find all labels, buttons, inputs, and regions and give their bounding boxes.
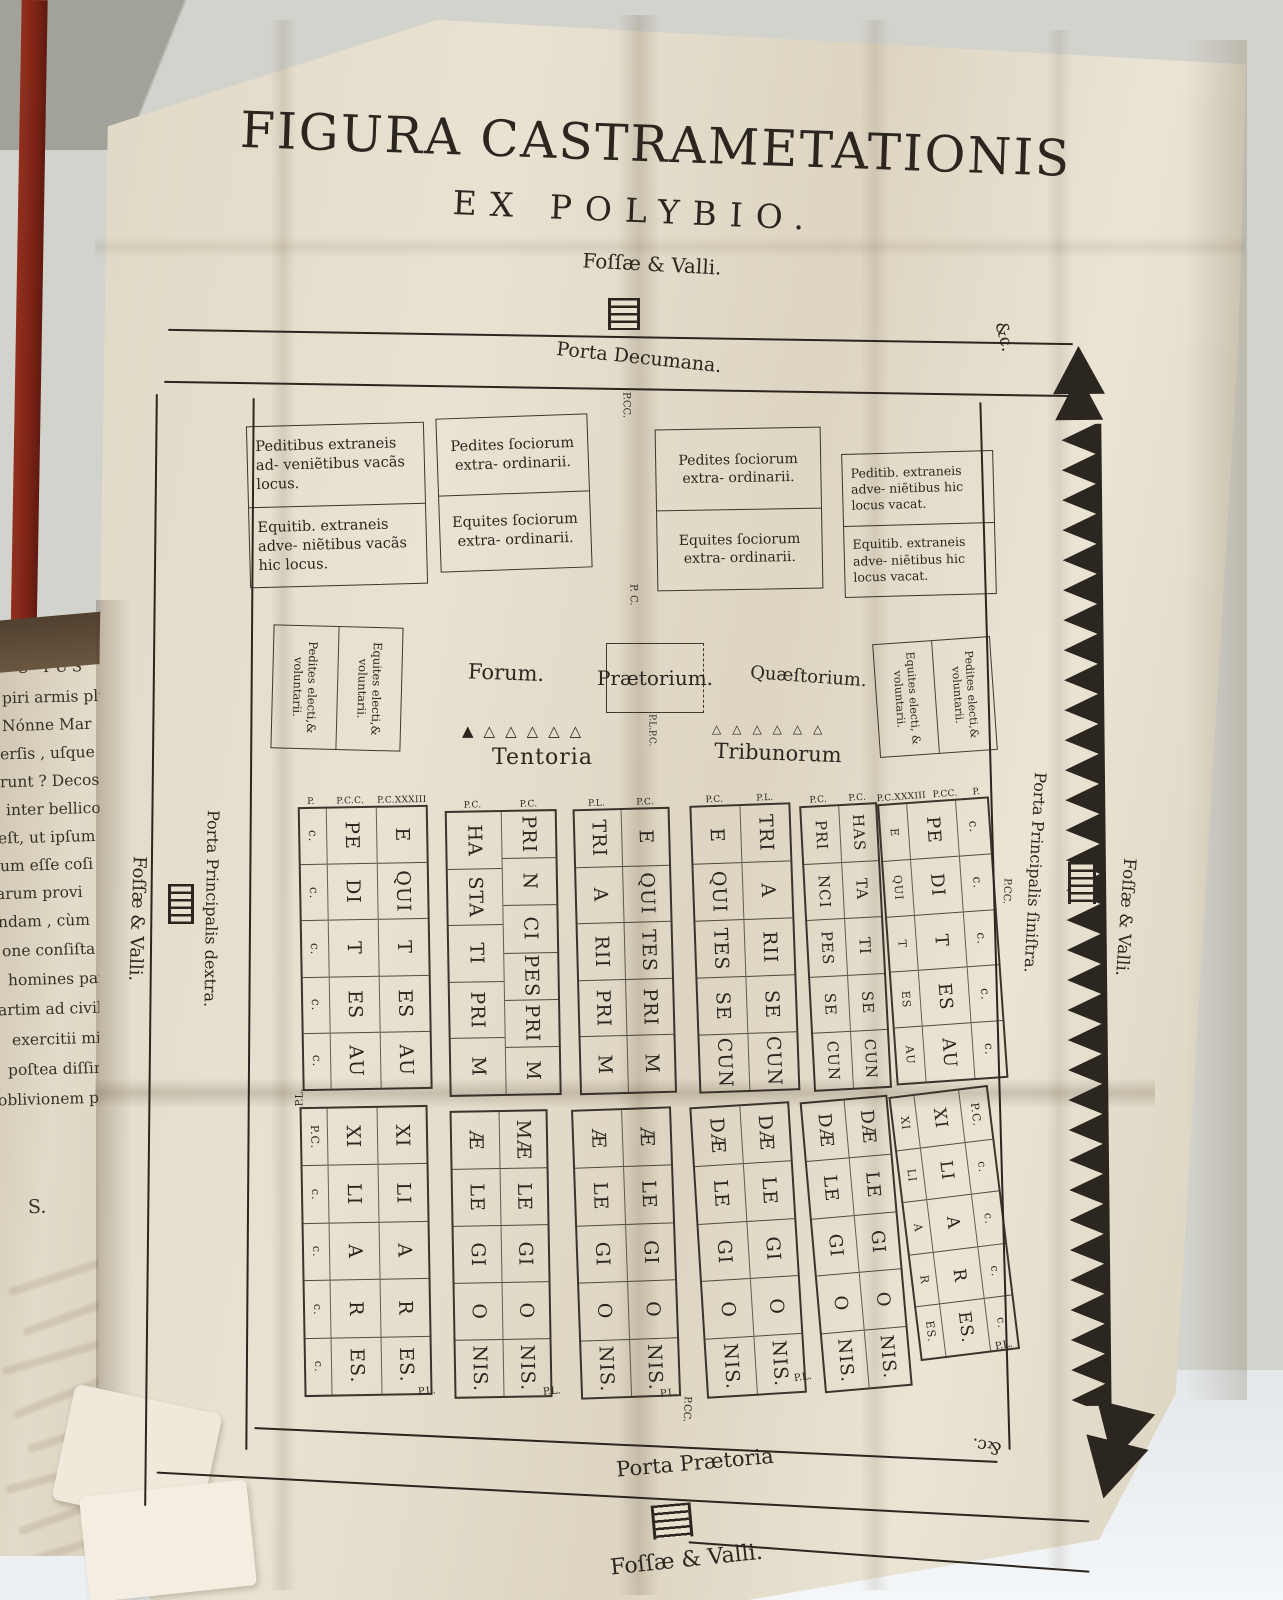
grid-cell: O bbox=[817, 1272, 863, 1333]
grid-cell-text: ES bbox=[395, 989, 415, 1018]
grid-cell-text: A bbox=[912, 1222, 924, 1232]
grid-cell-text: PE bbox=[923, 816, 943, 844]
grid-cell-text: O bbox=[717, 1300, 737, 1318]
grid-cell: E bbox=[377, 807, 427, 863]
electi-cell: Equites electi,& voluntarii. bbox=[335, 627, 403, 751]
praetorium-box: Prætorium. bbox=[606, 643, 704, 713]
grid-cell: O bbox=[750, 1275, 801, 1336]
grid-block-headers: P.P.C.C.P.C.XXXIII bbox=[297, 787, 427, 807]
grid-cell-text: LE bbox=[710, 1179, 731, 1209]
grid-cell: DI bbox=[910, 855, 963, 914]
grid-cell: PRI bbox=[501, 811, 555, 858]
grid-cell: QUI bbox=[883, 859, 913, 917]
grid-cell-text: CUN bbox=[714, 1037, 735, 1088]
grid-cell: O bbox=[702, 1278, 753, 1339]
grid-cell-text: A bbox=[345, 1244, 364, 1259]
grid-cell-text: LE bbox=[758, 1176, 779, 1206]
electi-cell-text: Pedites electi,& voluntarii. bbox=[289, 628, 321, 747]
grid-cell: CUN bbox=[813, 1031, 852, 1089]
p-cc-right-mark: P.CC. bbox=[999, 878, 1012, 926]
grid-block-body: HASTATIPRIMPRINCIPESPRIM bbox=[445, 809, 562, 1097]
grid-cell: E bbox=[879, 804, 909, 861]
grid-cell: M bbox=[451, 1037, 505, 1095]
grid-cell: TI bbox=[449, 924, 503, 982]
grid-cell: T bbox=[887, 915, 917, 973]
grid-cell-text: R bbox=[918, 1274, 930, 1285]
grid-cell: A bbox=[742, 860, 792, 919]
quarter-box-text: Equites ſociorum extra- ordinarii. bbox=[657, 507, 822, 590]
grid-cell-text: ES bbox=[935, 982, 955, 1011]
grid-cell: GI bbox=[854, 1211, 900, 1272]
grid-cell: c. bbox=[972, 1020, 1006, 1078]
grid-cell-text: AU bbox=[904, 1045, 916, 1065]
grid-cell: E bbox=[691, 806, 741, 864]
grid-cell-text: Æ bbox=[588, 1129, 608, 1150]
grid-cell-text: STA bbox=[465, 876, 485, 918]
electi-cell: Equites electi, & voluntarii. bbox=[873, 641, 938, 757]
grid-cell-text: QUI bbox=[393, 870, 413, 912]
grid-cell-text: PE bbox=[342, 821, 361, 850]
etc-mark-bottom: &c. bbox=[971, 1434, 1004, 1457]
grid-cell: XI bbox=[328, 1108, 377, 1165]
porta-decumana-label: Porta Decumana. bbox=[555, 340, 711, 376]
grid-cell: T bbox=[914, 911, 967, 970]
grid-cell-text: E bbox=[707, 827, 727, 843]
grid-cell: LI bbox=[921, 1142, 971, 1200]
fossae-valli-top-label: Foſſæ & Valli. bbox=[572, 250, 733, 279]
street-mark-label: P.L. bbox=[994, 1339, 1013, 1353]
grid-cell: c. bbox=[305, 1280, 331, 1338]
grid-cell-text: c. bbox=[313, 1361, 324, 1373]
grid-column: XILIARES. bbox=[327, 1108, 381, 1395]
grid-header-label: P.L. bbox=[572, 798, 621, 809]
p-l-p-c-mark: P.L.P.C. bbox=[646, 714, 655, 766]
grid-cell: LE bbox=[453, 1168, 500, 1226]
grid-cell-text: c. bbox=[983, 1043, 996, 1056]
grid-cell: c. bbox=[302, 920, 329, 977]
grid-cell: DÆ bbox=[844, 1097, 890, 1157]
grid-cell-text: N bbox=[520, 873, 539, 891]
grid-cell: PRI bbox=[626, 978, 673, 1036]
grid-cell-text: M bbox=[468, 1056, 487, 1077]
grid-cell: PRI bbox=[579, 979, 626, 1037]
street-mark-label: P.L. bbox=[418, 1385, 437, 1398]
grid-cell-text: E bbox=[889, 828, 901, 838]
grid-block-body: ÆLEGIONIS.ÆLEGIONIS. bbox=[571, 1106, 681, 1399]
grid-cell-text: ES bbox=[900, 990, 912, 1008]
grid-cell-text: SE bbox=[822, 992, 838, 1016]
grid-cell: TA bbox=[842, 860, 881, 918]
grid-cell: MÆ bbox=[499, 1111, 546, 1168]
grid-cell: GI bbox=[698, 1221, 749, 1282]
grid-header-label: P.C. bbox=[689, 794, 740, 806]
street-mark-label: P.L. bbox=[543, 1385, 562, 1398]
grid-cell-text: O bbox=[643, 1301, 663, 1318]
grid-cell: DI bbox=[327, 863, 377, 920]
grid-cell: R bbox=[934, 1246, 984, 1304]
grid-cell-text: c. bbox=[310, 1189, 321, 1201]
grid-cell-text: Æ bbox=[636, 1127, 656, 1148]
grid-cell: PRI bbox=[801, 806, 840, 863]
grid-cell: TI bbox=[845, 916, 884, 974]
grid-cell-text: c. bbox=[311, 1055, 323, 1068]
grid-block-body: DÆLEGIONIS.DÆLEGIONIS. bbox=[689, 1101, 807, 1399]
grid-cell: AU bbox=[330, 1032, 380, 1089]
grid-cell-text: LI bbox=[344, 1183, 363, 1205]
grid-cell: c. bbox=[304, 1032, 331, 1089]
grid-cell-text: AU bbox=[938, 1037, 958, 1068]
grid-cell-text: NIS. bbox=[720, 1343, 742, 1391]
grid-block-body: ÆLEGIONIS.MÆLEGIONIS. bbox=[450, 1109, 553, 1399]
grid-block-headers: P.L.P.C. bbox=[572, 789, 669, 810]
grid-cell-text: PRI bbox=[522, 1004, 542, 1042]
forum-label: Forum. bbox=[468, 660, 561, 685]
grid-cell: PES bbox=[807, 918, 846, 976]
grid-cell-text: NCI bbox=[816, 874, 833, 908]
grid-column: ÆLEGIONIS. bbox=[621, 1108, 679, 1396]
grid-cell: Æ bbox=[452, 1112, 499, 1169]
grid-cell: GI bbox=[626, 1222, 675, 1281]
grid-header-label: P.C. bbox=[501, 799, 557, 810]
grid-cell: LE bbox=[695, 1163, 746, 1224]
grid-cell: CUN bbox=[748, 1031, 798, 1090]
grid-cell-text: CUN bbox=[824, 1040, 841, 1081]
grid-column: TRIARIISECUN bbox=[739, 804, 798, 1090]
grid-cell: T bbox=[378, 918, 428, 975]
grid-cell-text: A bbox=[943, 1216, 961, 1231]
electi-cell-text: Equites electi,& voluntarii. bbox=[353, 629, 385, 748]
grid-cell: SE bbox=[810, 975, 849, 1033]
camp-grid-block: P.C.P.L.EQUITESSECUNTRIARIISECUN bbox=[689, 784, 800, 1089]
grid-column: EQUITESPRIM bbox=[621, 809, 675, 1092]
grid-cell-text: CI bbox=[520, 917, 539, 941]
grid-cell-text: GI bbox=[825, 1233, 845, 1258]
grid-cell-text: AU bbox=[346, 1045, 366, 1077]
grid-cell-text: O bbox=[766, 1297, 786, 1315]
grid-cell-text: TI bbox=[856, 937, 872, 956]
grid-cell: GI bbox=[812, 1215, 858, 1276]
quarter-box-text: Pedites ſociorum extra- ordinarii. bbox=[656, 428, 821, 510]
grid-cell-text: ES. bbox=[924, 1320, 938, 1343]
grid-cell: PES bbox=[504, 952, 558, 1000]
grid-cell-text: SE bbox=[859, 991, 875, 1015]
grid-cell-text: T bbox=[394, 940, 413, 954]
grid-cell: PRI bbox=[450, 981, 504, 1039]
grid-cell-text: Æ bbox=[466, 1130, 485, 1150]
grid-block-body: c.c.c.c.c.PEDITESAUEQUITESAU bbox=[298, 805, 433, 1091]
grid-cell: LE bbox=[807, 1157, 853, 1218]
street-mark-label: P.L. bbox=[793, 1371, 812, 1384]
grid-cell-text: SE bbox=[761, 989, 781, 1019]
grid-cell-text: R bbox=[395, 1300, 414, 1316]
camp-quarter-box: Pedites ſociorum extra- ordinarii. Equit… bbox=[435, 413, 592, 572]
grid-cell-text: NIS. bbox=[834, 1338, 856, 1384]
grid-cell-text: A bbox=[758, 882, 778, 897]
grid-cell: ES bbox=[379, 975, 429, 1032]
camp-grid-block: DÆLEGIONIS.DÆLEGIONIS. bbox=[689, 1101, 806, 1395]
tentoria-triangle-icons: ▲△△△△△ bbox=[462, 722, 591, 740]
grid-cell-text: O bbox=[469, 1303, 488, 1320]
grid-cell: STA bbox=[448, 868, 502, 926]
electi-cell-text: Equites electi, & voluntarii. bbox=[888, 644, 923, 754]
grid-cell-text: c. bbox=[310, 999, 322, 1012]
gate-hatch-icon bbox=[651, 1502, 694, 1539]
grid-block-body: P.C.c.c.c.c.XILIARES.XILIARES. bbox=[300, 1105, 433, 1397]
grid-cell-text: NIS. bbox=[768, 1340, 790, 1388]
electi-cell-text: Pedites electi,& voluntarii. bbox=[947, 640, 982, 750]
grid-cell-text: T bbox=[344, 941, 363, 955]
grid-cell-text: SE bbox=[712, 991, 732, 1021]
grid-cell: M bbox=[581, 1035, 628, 1093]
grid-cell: GI bbox=[454, 1225, 501, 1283]
grid-cell: A bbox=[330, 1222, 379, 1280]
grid-cell: RII bbox=[744, 917, 794, 976]
grid-cell: P.C. bbox=[302, 1109, 328, 1166]
rampart-arrowhead-bottom bbox=[1067, 1388, 1166, 1507]
grid-column: ÆLEGIONIS. bbox=[452, 1112, 503, 1397]
grid-cell-text: PRI bbox=[593, 989, 613, 1027]
grid-cell-text: A bbox=[590, 887, 609, 902]
grid-cell: QUI bbox=[623, 864, 670, 922]
camp-grid-block: P.L.P.C.TRIARIIPRIMEQUITESPRIM bbox=[572, 789, 677, 1091]
grid-cell-text: c. bbox=[967, 820, 980, 833]
grid-cell-text: c. bbox=[309, 943, 321, 956]
grid-cell: DÆ bbox=[802, 1101, 848, 1161]
grid-cell-text: LE bbox=[638, 1180, 658, 1209]
grid-header-label: P.C. bbox=[621, 797, 670, 808]
quarter-box-text: Pedites ſociorum extra- ordinarii. bbox=[436, 414, 589, 495]
grid-cell-text: GI bbox=[867, 1230, 887, 1255]
grid-cell-text: c. bbox=[976, 1160, 988, 1173]
tribunorum-triangle-icons: △△△△△△ bbox=[712, 722, 833, 736]
grid-cell: CUN bbox=[699, 1033, 749, 1092]
grid-cell: ES bbox=[918, 967, 971, 1026]
grid-cell: O bbox=[579, 1281, 628, 1340]
grid-header-label: P.L. bbox=[740, 792, 791, 804]
grid-cell-text: c. bbox=[312, 1303, 323, 1315]
grid-header-label: P. bbox=[964, 786, 989, 798]
grid-block-body: TRIARIIPRIMEQUITESPRIM bbox=[573, 807, 677, 1095]
grid-cell-text: GI bbox=[592, 1241, 612, 1266]
grid-cell: c. bbox=[300, 809, 327, 865]
grid-cell: HAS bbox=[839, 804, 878, 861]
grid-cell: SE bbox=[697, 976, 747, 1035]
grid-cell-text: XI bbox=[392, 1124, 411, 1147]
camp-grid-block: P.C.P.C.HASTATIPRIMPRINCIPESPRIM bbox=[444, 791, 561, 1093]
grid-cell: NIS. bbox=[864, 1326, 910, 1387]
grid-cell-text: ES bbox=[345, 990, 365, 1019]
grid-cell-text: LE bbox=[590, 1182, 610, 1211]
grid-cell-text: TES bbox=[638, 929, 658, 972]
grid-cell-text: DÆ bbox=[814, 1113, 835, 1149]
grid-column: PEDITESAU bbox=[325, 808, 380, 1089]
grid-cell: PE bbox=[907, 801, 960, 859]
grid-cell: c. bbox=[304, 1222, 330, 1280]
grid-cell-text: QUI bbox=[637, 872, 657, 915]
grid-cell-text: T bbox=[896, 939, 908, 948]
quarter-box-text: Equitib. extraneis adve- niẽtibus vacãs … bbox=[249, 502, 427, 587]
grid-cell-text: RII bbox=[591, 935, 611, 968]
grid-cell: E bbox=[622, 809, 669, 866]
grid-block-headers: P.C.P.C. bbox=[444, 791, 556, 811]
grid-cell-text: CUN bbox=[763, 1036, 784, 1087]
grid-header-label: P. bbox=[298, 797, 325, 807]
grid-cell-text: ES. bbox=[955, 1311, 976, 1345]
grid-header-label: P.C. bbox=[799, 794, 838, 806]
grid-cell: PRI bbox=[505, 999, 559, 1047]
grid-cell-text: XI bbox=[899, 1115, 912, 1130]
grid-header-label: P.C. bbox=[445, 800, 501, 811]
grid-cell: A bbox=[576, 866, 623, 924]
grid-cell: AU bbox=[922, 1022, 975, 1081]
grid-header-label: P.C.C. bbox=[324, 796, 376, 807]
engraved-diagram: FIGURA CASTRAMETATIONIS EX POLYBIO. Foſſ… bbox=[0, 0, 1283, 1600]
grid-cell: PE bbox=[326, 808, 376, 864]
grid-cell-text: NIS. bbox=[469, 1345, 489, 1392]
grid-cell-text: LI bbox=[905, 1168, 918, 1183]
grid-cell: GI bbox=[501, 1224, 548, 1282]
grid-cell: M bbox=[505, 1046, 559, 1094]
grid-cell: LI bbox=[378, 1163, 427, 1221]
camp-grid-block: ÆLEGIONIS.MÆLEGIONIS. bbox=[450, 1109, 553, 1395]
grid-cell-text: GI bbox=[468, 1242, 487, 1267]
grid-cell: ES bbox=[329, 975, 379, 1032]
quaestorium-label: Quæſtorium. bbox=[749, 664, 862, 691]
grid-column: HASTATIPRIM bbox=[447, 812, 505, 1095]
grid-block-body: EQUITESSECUNTRIARIISECUN bbox=[689, 802, 800, 1093]
porta-praetoria-label: Porta Prætoria bbox=[615, 1445, 768, 1480]
grid-cell: TES bbox=[625, 921, 672, 979]
camp-grid-block: ÆLEGIONIS.ÆLEGIONIS. bbox=[571, 1106, 681, 1395]
grid-cell-text: PES bbox=[818, 930, 835, 965]
grid-cell-text: XI bbox=[343, 1125, 362, 1148]
grid-cell: O bbox=[455, 1282, 502, 1340]
grid-cell-text: RII bbox=[759, 931, 779, 964]
grid-cell-text: E bbox=[636, 830, 655, 845]
grid-cell: QUI bbox=[378, 862, 428, 919]
grid-cell: CI bbox=[503, 904, 557, 952]
grid-cell: NIS. bbox=[705, 1336, 756, 1397]
grid-cell: NIS. bbox=[822, 1330, 868, 1391]
grid-cell: QUI bbox=[693, 862, 743, 921]
grid-cell-text: LE bbox=[862, 1170, 882, 1199]
grid-cell-text: QUI bbox=[708, 871, 728, 914]
grid-cell: TRI bbox=[575, 810, 622, 867]
gate-hatch-icon bbox=[168, 884, 194, 924]
grid-cell-text: CUN bbox=[862, 1039, 879, 1080]
gate-hatch-icon bbox=[608, 298, 640, 330]
grid-header-label: P.C.XXXIII bbox=[376, 795, 428, 806]
grid-cell-text: M bbox=[594, 1054, 614, 1075]
grid-cell: TES bbox=[695, 919, 745, 978]
grid-cell-text: MÆ bbox=[513, 1119, 533, 1160]
grid-cell-text: P.C. bbox=[309, 1125, 320, 1149]
grid-cell: M bbox=[627, 1034, 674, 1092]
grid-cell-text: LE bbox=[820, 1174, 840, 1203]
grid-cell-text: c. bbox=[989, 1264, 1001, 1277]
grid-cell-text: PRI bbox=[640, 988, 660, 1026]
quarter-box-text: Equites ſociorum extra- ordinarii. bbox=[439, 490, 592, 572]
grid-cell-text: PRI bbox=[519, 816, 539, 854]
grid-cell: LE bbox=[849, 1153, 895, 1214]
grid-cell: ES bbox=[891, 970, 921, 1028]
grid-block-body: EQUITESAUPEDITESAUc.c.c.c.c. bbox=[877, 796, 1008, 1085]
grid-cell: c. bbox=[303, 1165, 329, 1223]
grid-cell-text: DI bbox=[343, 879, 362, 904]
grid-cell-text: M bbox=[641, 1053, 661, 1074]
grid-cell-text: PRI bbox=[467, 991, 487, 1029]
grid-cell-text: DÆ bbox=[706, 1117, 727, 1154]
grid-cell: c. bbox=[301, 864, 328, 921]
grid-cell: LE bbox=[575, 1166, 624, 1225]
grid-cell-text: PES bbox=[521, 955, 541, 998]
grid-cell: c. bbox=[960, 853, 994, 911]
tentoria-label: Tentoria bbox=[470, 746, 615, 769]
grid-cell-text: ES. bbox=[347, 1348, 367, 1384]
grid-cell-text: NIS. bbox=[596, 1345, 617, 1392]
grid-cell-text: TRI bbox=[755, 814, 775, 852]
grid-cell-text: NIS. bbox=[877, 1334, 899, 1380]
grid-cell: c. bbox=[956, 799, 990, 856]
grid-cell-text: c. bbox=[982, 1212, 994, 1225]
grid-cell-text: GI bbox=[515, 1241, 534, 1266]
grid-cell: A bbox=[379, 1221, 428, 1279]
grid-cell-text: O bbox=[873, 1291, 892, 1308]
grid-block-headers: P.C.P.L. bbox=[689, 784, 791, 806]
grid-cell: LE bbox=[624, 1165, 673, 1224]
grid-cell: A bbox=[927, 1194, 977, 1252]
grid-cell: LE bbox=[500, 1167, 547, 1225]
electi-cell: Pedites electi,& voluntarii. bbox=[271, 625, 338, 749]
grid-cell: AU bbox=[895, 1026, 925, 1084]
porta-principalis-dextra-label: Porta Principalis dextra. bbox=[200, 810, 221, 1048]
camp-quarter-box: Peditib. extraneis adve- niẽtibus hic lo… bbox=[841, 450, 997, 598]
grid-cell-text: R bbox=[949, 1268, 968, 1284]
plate-subtitle: EX POLYBIO. bbox=[419, 185, 850, 238]
grid-cell: Æ bbox=[573, 1110, 622, 1168]
grid-cell-text: LI bbox=[393, 1182, 412, 1204]
grid-cell: AU bbox=[380, 1031, 430, 1088]
grid-cell-text: QUI bbox=[892, 875, 905, 901]
tribunorum-label: Tribunorum bbox=[704, 739, 853, 766]
grid-cell: SE bbox=[848, 973, 887, 1031]
electi-voluntarii-box-left: Pedites electi,& voluntarii.Equites elec… bbox=[270, 624, 403, 751]
grid-cell: Æ bbox=[622, 1108, 671, 1166]
grid-block-body: PRINCIPESSECUNHASTATISECUN bbox=[799, 802, 892, 1092]
grid-header-label: P.C. bbox=[838, 792, 877, 804]
grid-cell-text: TES bbox=[710, 927, 730, 970]
grid-cell-text: LE bbox=[467, 1183, 486, 1212]
grid-cell: c. bbox=[303, 976, 330, 1033]
grid-cell-text: TRI bbox=[588, 819, 608, 857]
grid-cell-text: GI bbox=[714, 1239, 734, 1265]
grid-cell-text: GI bbox=[762, 1236, 782, 1262]
grid-cell-text: E bbox=[392, 827, 411, 842]
camp-grid-block: P.C.c.c.c.c.XILIARES.XILIARES. bbox=[300, 1105, 433, 1393]
grid-column: MÆLEGIONIS. bbox=[498, 1111, 550, 1396]
plate-title: FIGURA CASTRAMETATIONIS bbox=[239, 104, 1050, 185]
grid-cell: LI bbox=[329, 1164, 378, 1222]
grid-cell: NIS. bbox=[581, 1339, 630, 1398]
grid-cell: HA bbox=[447, 812, 501, 869]
electi-voluntarii-box-right: Equites electi, & voluntarii.Pedites ele… bbox=[872, 636, 998, 758]
p-c-mid-mark: P. C. bbox=[627, 584, 638, 620]
camp-grid-block: P.C.XXXIIIP.CC.P.EQUITESAUPEDITESAUc.c.c… bbox=[876, 778, 1008, 1081]
quarter-box-text: Equitib. extraneis adve- niẽtibus hic lo… bbox=[844, 522, 996, 597]
grid-cell: c. bbox=[306, 1337, 332, 1395]
grid-cell-text: HA bbox=[464, 824, 484, 857]
grid-cell: NIS. bbox=[456, 1339, 503, 1397]
